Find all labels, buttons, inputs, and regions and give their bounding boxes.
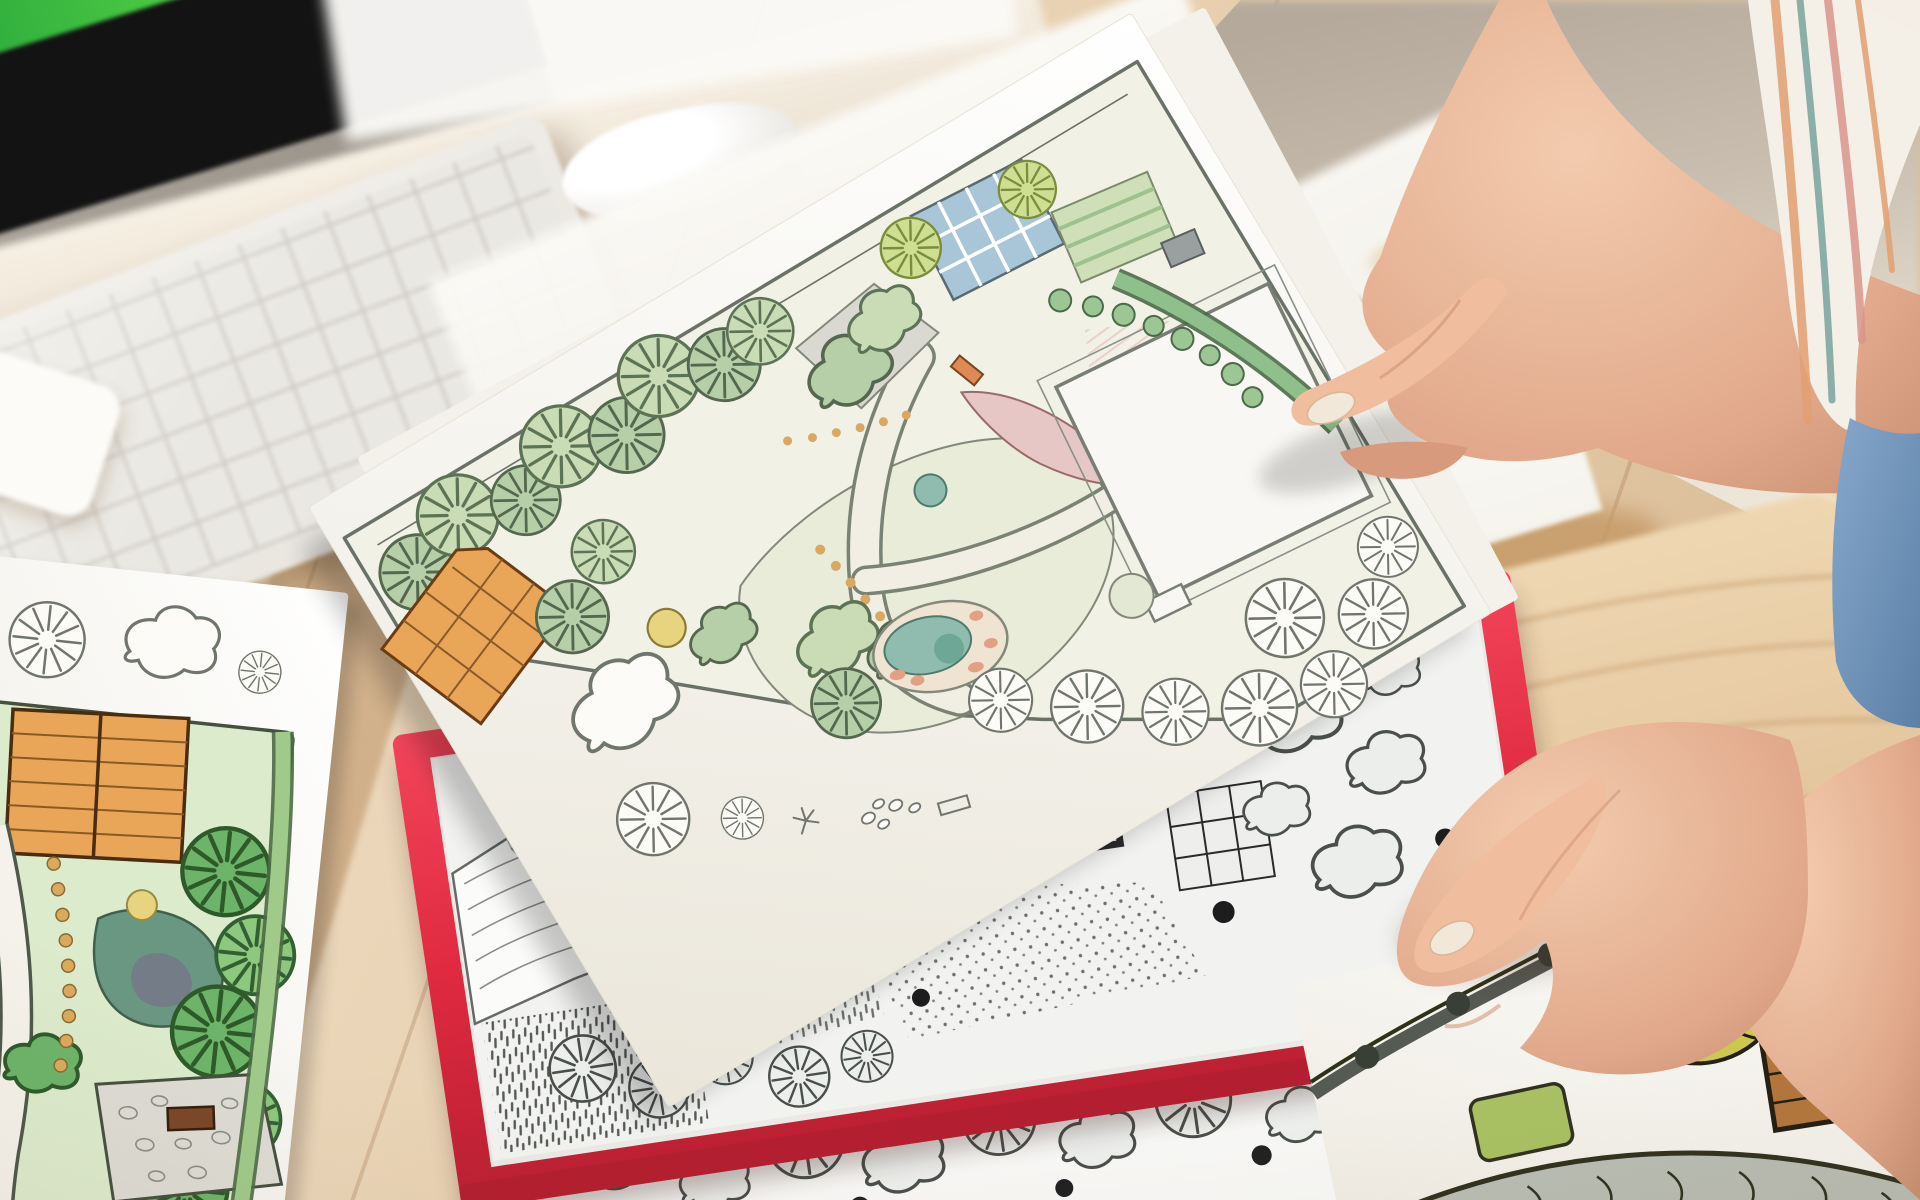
left-plan-deck	[5, 709, 188, 862]
denim-clothing	[1832, 418, 1920, 728]
illustration-layer	[0, 0, 1920, 1200]
photo-scene	[0, 0, 1920, 1200]
